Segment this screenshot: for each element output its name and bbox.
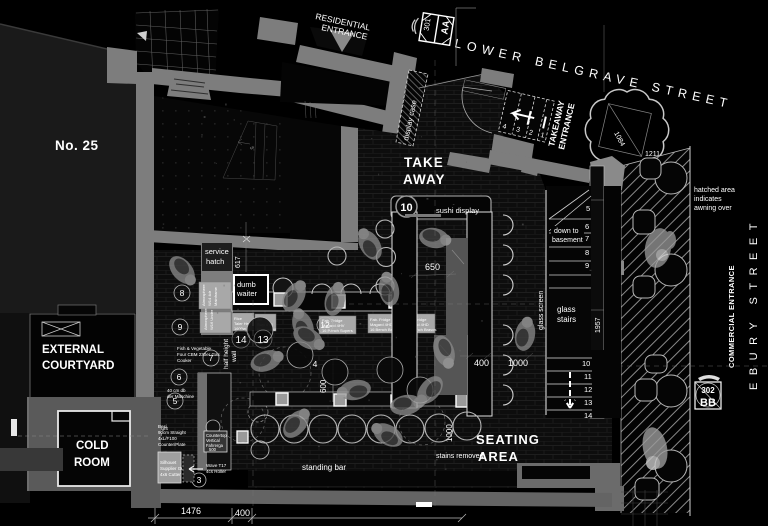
svg-text:Mainframe: Mainframe <box>213 286 218 306</box>
svg-text:W16 Under: W16 Under <box>209 309 214 330</box>
svg-text:6: 6 <box>177 372 182 382</box>
svg-text:3: 3 <box>197 475 202 485</box>
svg-text:4x6 Cutter: 4x6 Cutter <box>160 472 181 477</box>
svg-text:90cm Straight: 90cm Straight <box>158 430 187 435</box>
svg-text:302: 302 <box>701 386 715 395</box>
svg-text:11: 11 <box>584 372 592 381</box>
svg-text:12: 12 <box>584 385 592 394</box>
svg-text:COURTYARD: COURTYARD <box>42 360 114 372</box>
svg-text:AWAY: AWAY <box>403 172 446 187</box>
svg-text:Besi: Besi <box>158 424 167 429</box>
svg-text:9: 9 <box>585 261 589 270</box>
svg-text:1476: 1476 <box>181 506 201 516</box>
svg-text:617: 617 <box>235 256 242 268</box>
svg-text:5: 5 <box>586 204 590 213</box>
svg-text:EXTERNAL: EXTERNAL <box>42 344 104 356</box>
svg-text:Silhouet: Silhouet <box>160 460 177 465</box>
svg-text:glass screen: glass screen <box>538 291 545 330</box>
svg-text:COLD: COLD <box>76 440 109 452</box>
svg-text:hatched area: hatched area <box>694 187 735 194</box>
svg-text:stains removed: stains removed <box>436 453 484 460</box>
svg-text:awning over: awning over <box>694 205 732 212</box>
svg-text:1957: 1957 <box>595 317 602 333</box>
svg-text:ROOM: ROOM <box>74 457 110 469</box>
svg-text:hatch: hatch <box>206 257 224 266</box>
svg-text:service: service <box>205 247 229 256</box>
svg-text:13: 13 <box>257 335 269 346</box>
svg-text:W14 4dr: W14 4dr <box>207 290 212 306</box>
svg-text:500: 500 <box>209 447 217 452</box>
svg-text:Supplier Gull: Supplier Gull <box>160 466 186 471</box>
svg-text:40 cm db: 40 cm db <box>167 388 186 393</box>
svg-text:down to: down to <box>554 228 579 235</box>
svg-text:8: 8 <box>585 248 589 257</box>
svg-text:4xL/F100: 4xL/F100 <box>158 436 177 441</box>
svg-text:14: 14 <box>235 335 247 346</box>
svg-text:9: 9 <box>178 322 183 332</box>
svg-text:4: 4 <box>313 359 318 369</box>
svg-text:1000: 1000 <box>508 358 528 368</box>
svg-text:wall: wall <box>231 350 238 363</box>
svg-text:indicates: indicates <box>694 196 722 203</box>
svg-text:10: 10 <box>582 359 590 368</box>
svg-text:half height: half height <box>223 339 230 369</box>
svg-text:AA: AA <box>439 20 452 35</box>
svg-text:10: 10 <box>400 202 412 214</box>
svg-text:12: 12 <box>320 320 330 330</box>
svg-text:COMMERCIAL ENTRANCE: COMMERCIAL ENTRANCE <box>727 265 736 368</box>
svg-text:glass: glass <box>557 305 576 314</box>
svg-text:6: 6 <box>585 222 589 231</box>
svg-text:13: 13 <box>584 398 592 407</box>
svg-text:400: 400 <box>235 508 250 518</box>
svg-text:sushi display: sushi display <box>436 206 479 215</box>
svg-text:400: 400 <box>474 358 489 368</box>
svg-text:4cs Roller: 4cs Roller <box>206 469 227 474</box>
svg-text:Wave T17: Wave T17 <box>206 463 227 468</box>
svg-text:stairs: stairs <box>557 315 576 324</box>
svg-text:SEATING: SEATING <box>476 432 540 447</box>
svg-text:standing bar: standing bar <box>302 463 346 472</box>
svg-text:650: 650 <box>425 262 440 272</box>
svg-text:waiter: waiter <box>236 289 258 298</box>
svg-text:Fish & Vegetable: Fish & Vegetable <box>177 346 212 351</box>
svg-text:dumb: dumb <box>237 280 256 289</box>
svg-text:Cooker: Cooker <box>177 358 192 363</box>
svg-text:Atmosphere: Atmosphere <box>201 284 206 306</box>
svg-text:7: 7 <box>585 234 589 243</box>
svg-text:No. 25: No. 25 <box>55 138 99 153</box>
svg-text:Atmosphere: Atmosphere <box>203 308 208 330</box>
svg-text:AREA: AREA <box>478 449 519 464</box>
svg-text:TAKE: TAKE <box>404 155 444 170</box>
svg-text:8: 8 <box>180 288 185 298</box>
svg-text:14: 14 <box>584 411 592 420</box>
svg-text:der Maschine: der Maschine <box>167 394 195 399</box>
svg-text:basement: basement <box>552 237 583 244</box>
svg-text:Four CBM 230er Gas: Four CBM 230er Gas <box>177 352 221 357</box>
svg-text:Counter/Plate: Counter/Plate <box>158 442 186 447</box>
svg-text:BB: BB <box>700 397 716 409</box>
svg-text:EBURY STREET: EBURY STREET <box>748 216 760 390</box>
